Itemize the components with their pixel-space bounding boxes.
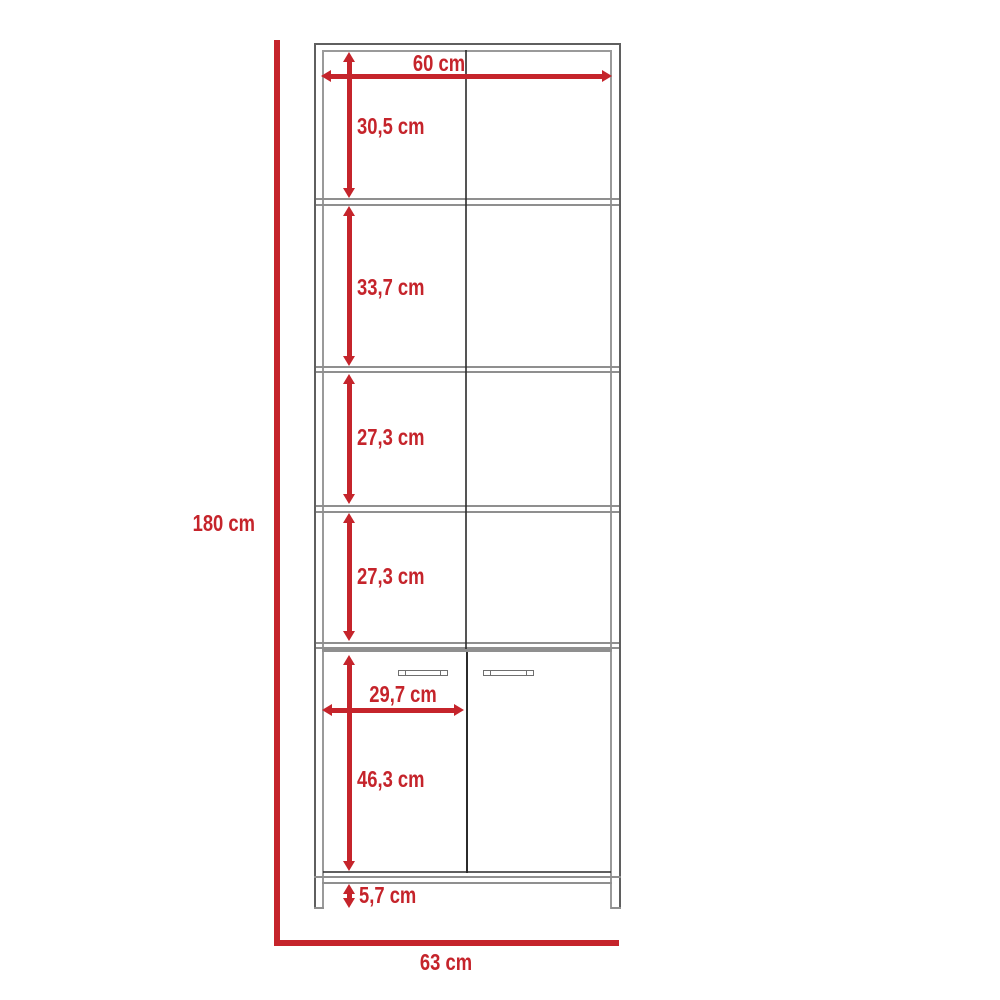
left-leg-foot [314, 907, 324, 909]
door-bottom-edge [323, 871, 611, 873]
shelf-4-top-line [316, 642, 619, 644]
dim-label-base-clearance: 5,7 cm [359, 882, 416, 908]
dim-arrow-door-height [347, 665, 352, 861]
shelf-3-bottom-line [316, 511, 619, 513]
dim-label-door-width: 29,7 cm [363, 681, 443, 707]
dim-label-total-width: 63 cm [406, 949, 486, 975]
handle-end-cap [399, 671, 406, 675]
dim-label-section-3: 27,3 cm [357, 424, 425, 450]
cabinet-top-edge [314, 43, 621, 45]
handle-end-cap [484, 671, 491, 675]
dim-arrow-base-clearance [347, 894, 352, 898]
door-handle-right [483, 670, 534, 676]
handle-end-cap [440, 671, 447, 675]
dim-line-total-width [274, 940, 619, 946]
cabinet-right-edge [619, 43, 621, 909]
dim-label-section-4: 27,3 cm [357, 563, 425, 589]
dim-arrow-section-4 [347, 523, 352, 631]
door-handle-left [398, 670, 448, 676]
door-divider [466, 652, 468, 873]
cabinet-left-inner-edge [322, 50, 324, 909]
center-divider [465, 50, 467, 649]
base-panel-top-edge [314, 876, 621, 878]
shelf-2-top-line [316, 366, 619, 368]
shelf-1-bottom-line [316, 204, 619, 206]
dim-line-total-height [274, 40, 280, 946]
shelf-2-bottom-line [316, 371, 619, 373]
dim-label-total-height: 180 cm [175, 510, 255, 536]
handle-end-cap [526, 671, 533, 675]
shelf-3-top-line [316, 505, 619, 507]
dim-label-door-height: 46,3 cm [357, 766, 425, 792]
dim-arrow-section-1 [347, 62, 352, 188]
cabinet-left-edge [314, 43, 316, 909]
dim-arrow-section-3 [347, 384, 352, 494]
dim-arrow-section-2 [347, 216, 352, 356]
dim-label-section-1: 30,5 cm [357, 113, 425, 139]
dim-label-section-2: 33,7 cm [357, 274, 425, 300]
cabinet-right-inner-edge [610, 50, 612, 909]
shelf-1-top-line [316, 198, 619, 200]
dim-label-top-width: 60 cm [399, 50, 479, 76]
right-leg-foot [611, 907, 621, 909]
dimension-diagram-canvas: 180 cm 60 cm 30,5 cm 33,7 cm 27,3 cm 27,… [0, 0, 1000, 1000]
